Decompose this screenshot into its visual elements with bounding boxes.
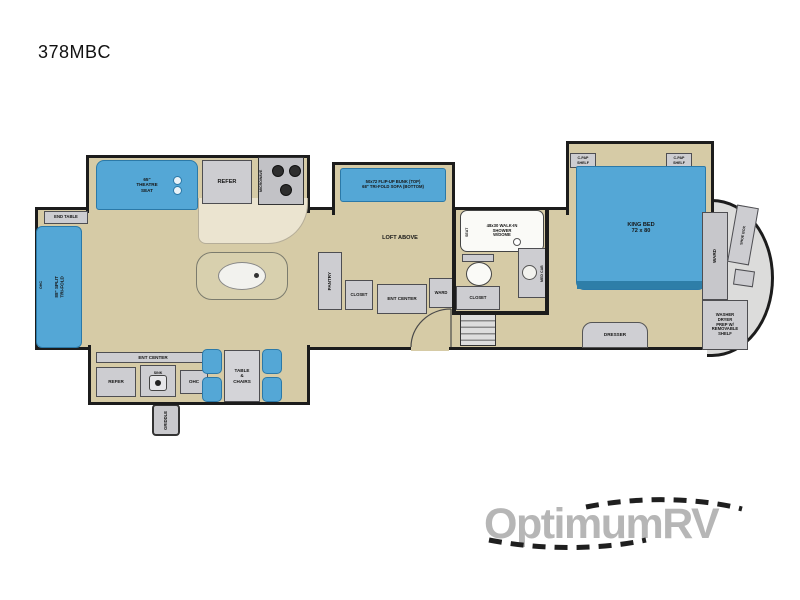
end-table: END TABLE xyxy=(44,211,88,224)
cpap-shelf-label: C-PAP SHELF xyxy=(577,156,589,164)
kitchen-island xyxy=(196,252,288,300)
dinette-chair xyxy=(202,377,222,402)
wall-bath-bedroom xyxy=(545,210,549,313)
microwave-label: MICROWAVE xyxy=(259,161,263,201)
dinette-table-label: TABLE & CHAIRS xyxy=(233,368,251,384)
king-bed: KING BED 72 x 80 xyxy=(576,166,706,290)
bedroom-steps xyxy=(460,314,496,346)
wall-bath-bottom xyxy=(452,311,549,315)
bath-vanity: MED CAB xyxy=(518,248,546,298)
hall-ward-label: WARD xyxy=(435,291,448,296)
burner-icon xyxy=(289,165,301,177)
theatre-seat-sofa: 65" THEATRE SEAT xyxy=(96,160,198,210)
watermark-brand: OptimumRV xyxy=(484,500,718,549)
refrigerator-label: REFER xyxy=(218,179,237,185)
end-table-label: END TABLE xyxy=(54,215,78,220)
sink-bowl-icon xyxy=(149,375,167,391)
wall-kitchen-bath xyxy=(452,210,456,313)
pantry-label: PANTRY xyxy=(327,272,332,290)
theatre-seat-label: 65" THEATRE SEAT xyxy=(136,177,157,193)
king-bed-label: KING BED 72 x 80 xyxy=(627,222,654,235)
shower-drain-icon xyxy=(513,238,521,246)
bunk-label: 50x72 FLIP-UP BUNK (TOP) 68" TRI-FOLD SO… xyxy=(362,180,424,190)
rear-sofa-label: 88" SPLIT TRI-FOLD xyxy=(54,276,65,298)
exterior-griddle: GRIDDLE xyxy=(152,404,180,436)
flip-up-bunk: 50x72 FLIP-UP BUNK (TOP) 68" TRI-FOLD SO… xyxy=(340,168,446,202)
vanity-sink-icon xyxy=(522,265,537,280)
exterior-refrigerator: REFER xyxy=(96,367,136,397)
exterior-ent-center-label: ENT CENTER xyxy=(138,355,167,360)
griddle-label: GRIDDLE xyxy=(164,411,169,430)
exterior-sink: SINK xyxy=(140,365,176,397)
bedroom-ward-label: WARD xyxy=(712,249,717,263)
hall-closet: CLOSET xyxy=(345,280,373,310)
loft-above-label: LOFT ABOVE xyxy=(382,235,418,241)
entertainment-center: ENT CENTER xyxy=(377,284,427,314)
range-stove: MICROWAVE xyxy=(258,157,304,205)
dinette-chair xyxy=(262,377,282,402)
rear-tri-fold-sofa: 88" SPLIT TRI-FOLD OHC xyxy=(36,226,82,348)
toilet xyxy=(466,262,492,286)
walk-in-shower: 48x30 WALK-IN SHOWER W/DOME SEAT xyxy=(460,210,544,252)
bath-closet: CLOSET xyxy=(456,286,500,310)
exterior-ent-center: ENT CENTER xyxy=(96,352,210,363)
burner-icon xyxy=(280,184,292,196)
shower-label: 48x30 WALK-IN SHOWER W/DOME xyxy=(487,224,518,238)
dinette-chair xyxy=(202,349,222,374)
bed-foot-strip xyxy=(577,281,705,289)
dresser-label: DRESSER xyxy=(604,332,626,337)
med-cab-label: MED CAB xyxy=(540,254,544,294)
entry-door-opening xyxy=(411,346,449,351)
shower-seat-label: SEAT xyxy=(465,219,469,245)
refrigerator: REFER xyxy=(202,160,252,204)
washer-dryer-label: WASHER DRYER PREP W/ REMOVABLE SHELF xyxy=(712,313,738,337)
floorplan-canvas: 378MBC 65" THEATRE SEAT REFER MICROWAVE … xyxy=(0,0,800,600)
ent-center-label: ENT CENTER xyxy=(387,296,416,301)
island-sink-icon xyxy=(218,262,266,290)
dinette-chair xyxy=(262,349,282,374)
exterior-refer-label: REFER xyxy=(108,379,124,384)
hall-closet-label: CLOSET xyxy=(351,293,368,298)
cpap-shelf-label: C-PAP SHELF xyxy=(673,156,685,164)
exterior-ohc-label: OHC xyxy=(189,379,199,384)
cap-shelf xyxy=(733,269,755,288)
washer-dryer-prep: WASHER DRYER PREP W/ REMOVABLE SHELF xyxy=(702,300,748,350)
floorplan-model-number: 378MBC xyxy=(38,42,111,63)
loft-above: LOFT ABOVE xyxy=(352,232,448,244)
rear-ohc-label: OHC xyxy=(39,265,43,305)
toilet-tank xyxy=(462,254,494,262)
bedroom-wardrobe: WARD xyxy=(702,212,728,300)
cupholder-icon xyxy=(173,186,182,195)
dinette-table: TABLE & CHAIRS xyxy=(224,350,260,402)
dresser: DRESSER xyxy=(582,322,648,348)
hall-wardrobe: WARD xyxy=(429,278,453,308)
cupholder-icon xyxy=(173,176,182,185)
burner-icon xyxy=(272,165,284,177)
pantry: PANTRY xyxy=(318,252,342,310)
shoe-box-label: SHOE BOX xyxy=(739,225,746,244)
bath-closet-label: CLOSET xyxy=(470,296,487,301)
